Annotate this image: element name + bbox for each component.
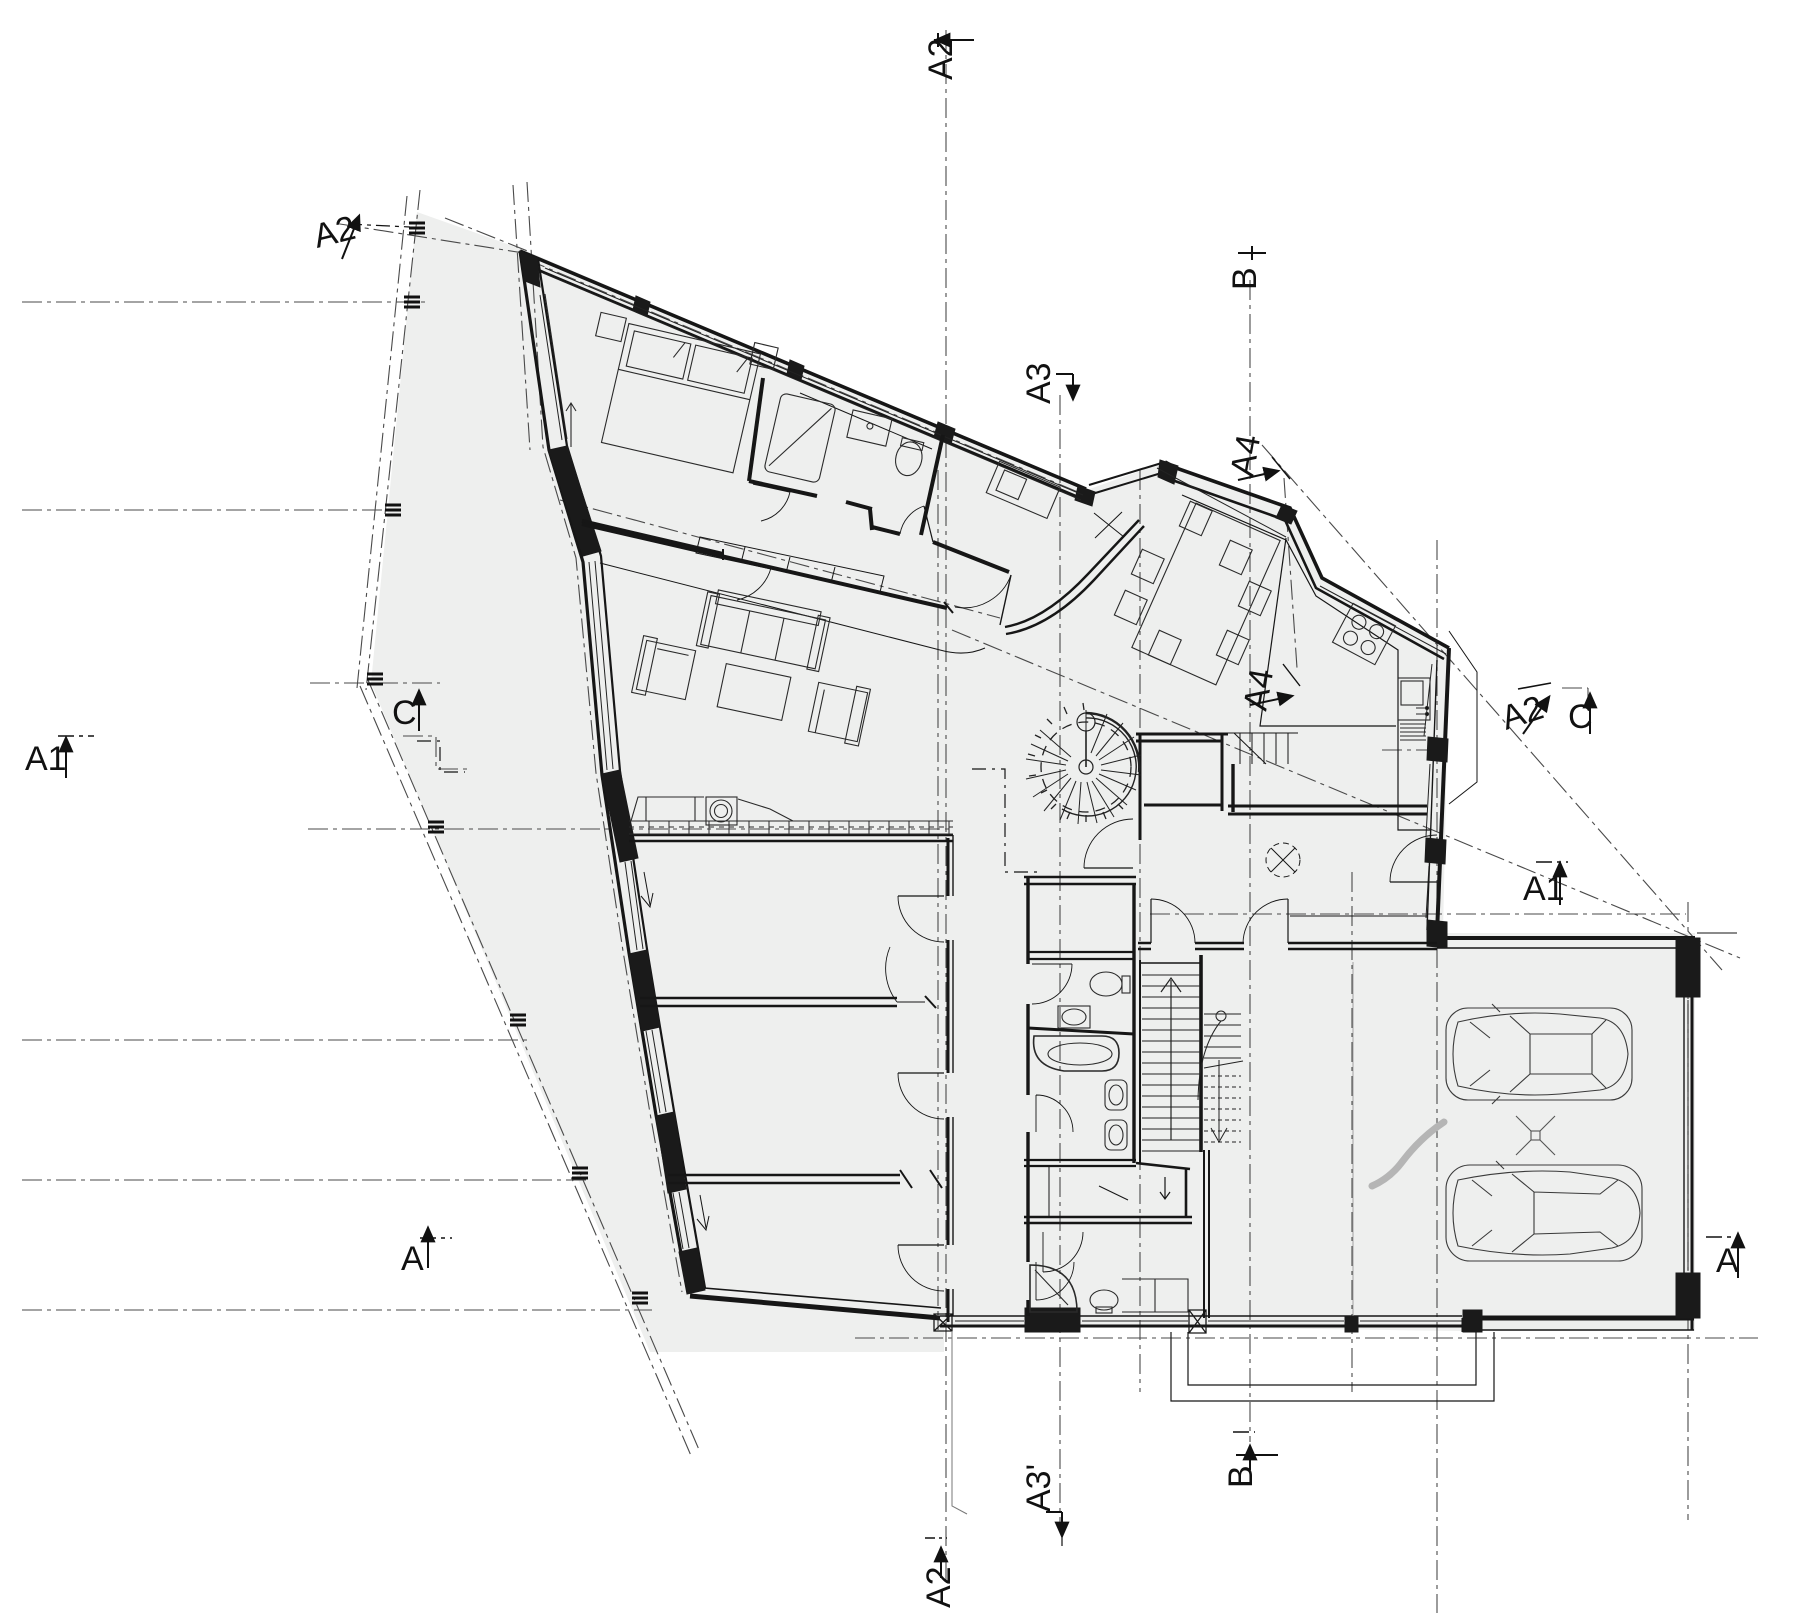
svg-text:B: B [1222, 1465, 1260, 1488]
svg-text:A2: A2 [1497, 689, 1548, 738]
svg-text:A2: A2 [922, 38, 960, 80]
svg-text:A4: A4 [1223, 432, 1268, 480]
svg-text:B: B [1226, 267, 1264, 290]
svg-text:C: C [392, 694, 417, 732]
svg-text:A3: A3 [1020, 362, 1058, 404]
svg-text:A1: A1 [25, 740, 67, 778]
svg-text:A: A [1716, 1242, 1739, 1280]
svg-text:A2: A2 [920, 1566, 958, 1608]
svg-text:A: A [401, 1240, 424, 1278]
svg-text:C: C [1568, 698, 1593, 736]
svg-text:A1: A1 [1523, 870, 1565, 908]
svg-text:A4: A4 [1236, 666, 1281, 714]
svg-text:A3': A3' [1020, 1464, 1058, 1512]
